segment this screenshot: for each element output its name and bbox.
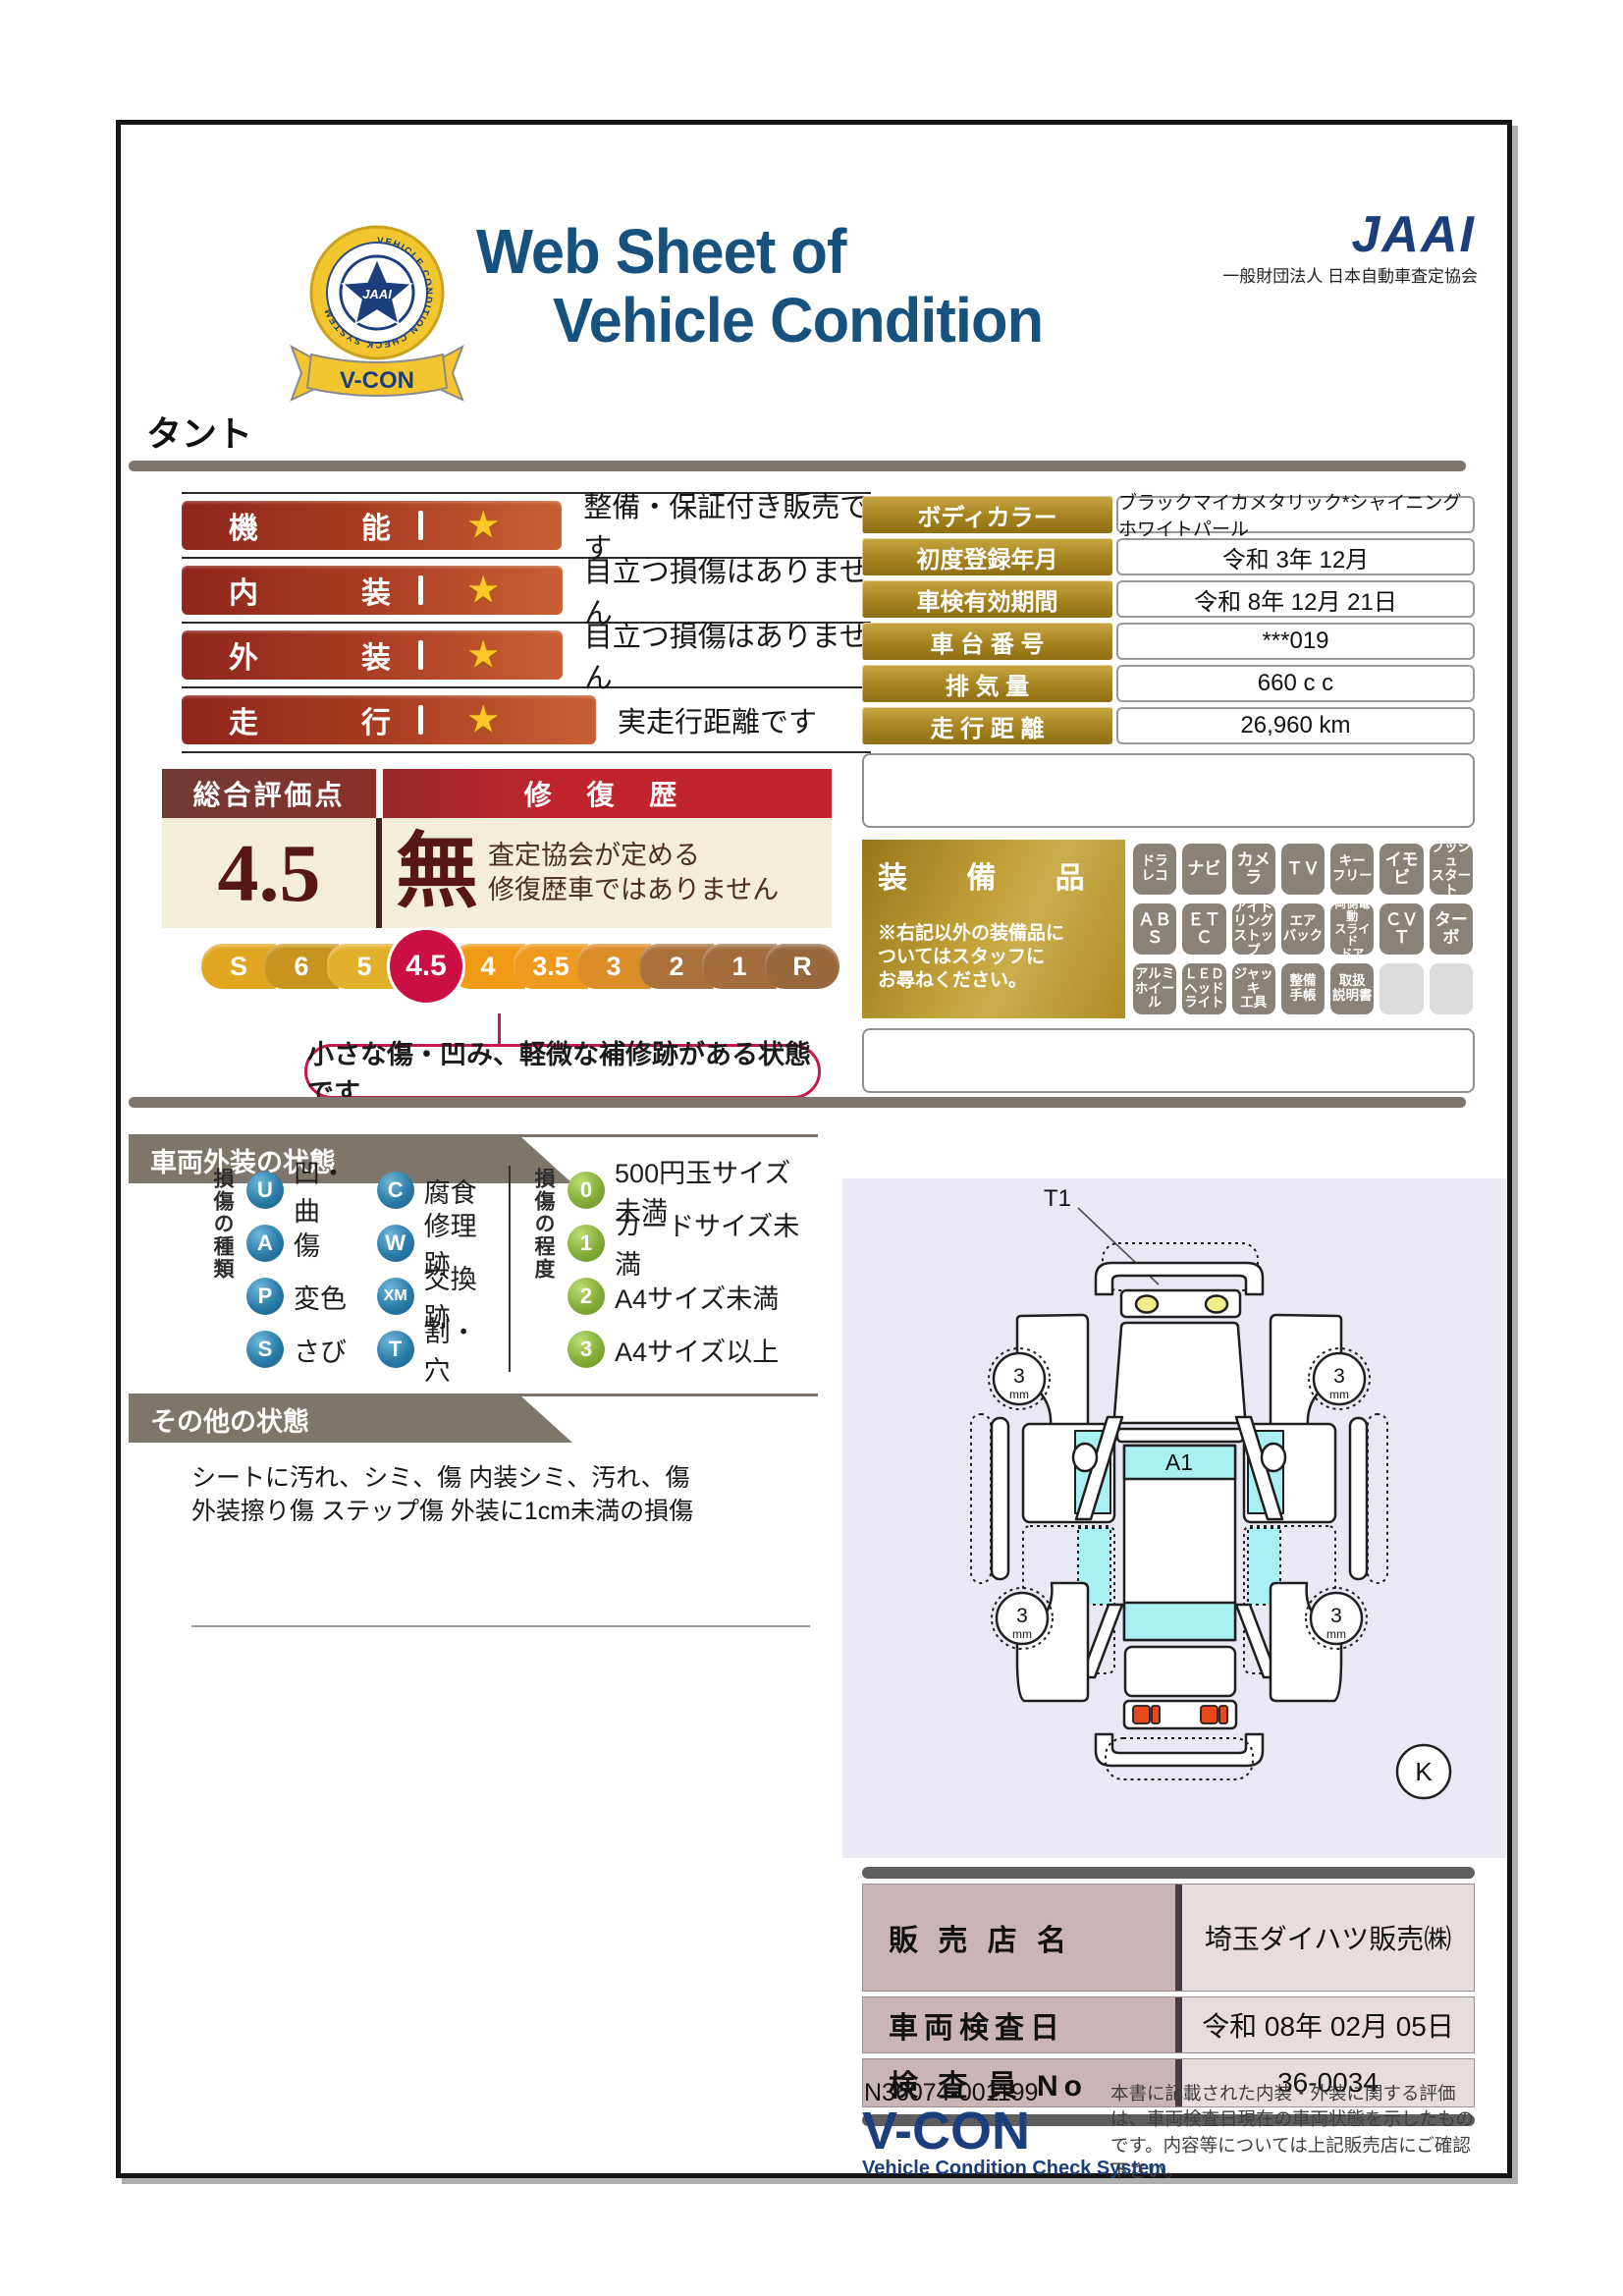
info-label: 車 台 番 号 <box>862 623 1112 660</box>
pill-divider <box>418 640 423 670</box>
score-callout: 小さな傷・凹み、軽微な補修跡がある状態です <box>304 1044 821 1099</box>
equipment-grid: ドラ レコ ナビ カメラ ＴＶ キー フリー イモビ プッシュ スタート ＡＢＳ… <box>1125 840 1475 1018</box>
equipment-badge: キー フリー <box>1330 844 1374 895</box>
rating-row-interior: 内装 ★ 目立つ損傷はありません <box>182 557 871 622</box>
equipment-badge-empty <box>1430 963 1473 1014</box>
rating-label: 外 <box>229 633 258 677</box>
info-empty-box <box>862 753 1475 828</box>
dealer-label: 車両検査日 <box>863 1997 1175 2052</box>
damage-code-U: U <box>246 1172 284 1209</box>
equipment-badge: ＴＶ <box>1281 844 1325 895</box>
damage-code-T: T <box>377 1331 414 1368</box>
equipment-badge: エア バック <box>1281 903 1325 955</box>
sheet-title-line2: Vehicle Condition <box>553 284 1043 356</box>
scale-seg-selected: 4.5 <box>390 930 462 1003</box>
tire-depth-value: 3 <box>1013 1365 1025 1388</box>
rating-row-exterior: 外装 ★ 目立つ損傷はありません <box>182 622 871 686</box>
dealer-divider <box>1175 1997 1182 2052</box>
degree-code-2: 2 <box>568 1278 605 1315</box>
info-value: ブラックマイカメタリック*シャイニングホワイトパール <box>1116 496 1475 533</box>
damage-code-C: C <box>377 1172 414 1209</box>
other-condition-text: シートに汚れ、シミ、傷 内装シミ、汚れ、傷 外装擦り傷 ステップ傷 外装に1cm… <box>191 1462 839 1529</box>
info-label: 車検有効期間 <box>862 580 1112 618</box>
repair-history-value: 無 <box>396 832 478 914</box>
dealer-value: 令和 08年 02月 05日 <box>1182 1997 1474 2052</box>
diagram-label-k: K <box>1415 1757 1433 1786</box>
rating-desc: 実走行距離です <box>618 699 817 740</box>
vehicle-model-name: タント <box>146 406 252 457</box>
rating-pill: 走行 ★ <box>182 695 596 744</box>
rating-label: 機 <box>229 504 258 547</box>
equipment-badge: アイド リング ストップ <box>1232 903 1275 955</box>
vcon-logo: V-CON <box>862 2101 1030 2161</box>
info-label: 初度登録年月 <box>862 538 1112 575</box>
equipment-badge: アルミ ホイール <box>1133 963 1176 1014</box>
info-label: 排 気 量 <box>862 665 1112 702</box>
damage-legend: 損傷の種類 U凹・曲 A傷 P変色 Sさび C腐食 W修理跡 XM交換跡 T割・… <box>207 1164 826 1376</box>
damage-type-text: さび <box>294 1331 347 1369</box>
car-diagram-panel: T1 A1 K 3 mm 3 mm 3 mm 3 mm <box>842 1178 1506 1858</box>
info-row-inspection-valid: 車検有効期間 令和 8年 12月 21日 <box>862 580 1475 618</box>
damage-type-text: 変色 <box>294 1278 347 1316</box>
equipment-badge: 整備 手帳 <box>1281 963 1325 1014</box>
damage-code-A: A <box>246 1225 284 1262</box>
info-value: 令和 8年 12月 21日 <box>1116 580 1475 618</box>
section-title: その他の状態 <box>129 1396 572 1443</box>
tire-depth-unit: mm <box>1009 1388 1029 1401</box>
header-separator <box>376 769 383 818</box>
equipment-badge: ＡＢＳ <box>1133 903 1176 955</box>
vcon-badge-logo: VEHICLE CONDITION CHECK SYSTEM JAAI V-CO… <box>290 211 464 415</box>
evaluation-header-score: 総合評価点 <box>162 769 376 818</box>
scale-seg: R <box>765 944 839 989</box>
rating-label: 走 <box>229 698 258 741</box>
divider-bar <box>129 461 1466 471</box>
equipment-badge-empty <box>1380 963 1423 1014</box>
rating-pill: 内装 ★ <box>182 566 563 615</box>
info-value: 26,960 km <box>1116 707 1475 744</box>
rating-pill: 機能 ★ <box>182 501 562 550</box>
equipment-badge: ターボ <box>1430 903 1473 955</box>
pill-divider <box>418 511 423 540</box>
tire-depth-unit: mm <box>1329 1388 1349 1401</box>
equipment-note: ※右記以外の装備品に ついてはスタッフに お尋ねください。 <box>878 922 1125 992</box>
equipment-badge: イモビ <box>1380 844 1423 895</box>
evaluation-section: 総合評価点 修 復 歴 4.5 無 査定協会が定める 修復歴車ではありません <box>162 769 832 928</box>
damage-type-text: 割・穴 <box>424 1311 482 1388</box>
dealer-divider <box>1175 1885 1182 1991</box>
rating-label: 能 <box>361 504 391 547</box>
degree-code-0: 0 <box>568 1172 605 1209</box>
rating-desc: 目立つ損傷はありません <box>584 614 871 696</box>
rating-label: 行 <box>361 698 391 741</box>
equipment-badge: ナビ <box>1182 844 1225 895</box>
pill-divider <box>418 575 423 605</box>
info-value: 令和 3年 12月 <box>1116 538 1475 575</box>
dealer-table: 販 売 店 名 埼玉ダイハツ販売㈱ 車両検査日 令和 08年 02月 05日 検… <box>862 1884 1475 2107</box>
info-row-chassis-no: 車 台 番 号 ***019 <box>862 623 1475 660</box>
tire-depth-value: 3 <box>1333 1365 1345 1388</box>
rating-label: 装 <box>361 569 391 612</box>
thin-divider <box>191 1625 810 1627</box>
divider-bar <box>129 1097 1466 1108</box>
info-row-displacement: 排 気 量 660 c c <box>862 665 1475 702</box>
evaluation-body: 4.5 無 査定協会が定める 修復歴車ではありません <box>162 818 832 928</box>
pill-divider <box>418 705 423 735</box>
equipment-badge: ジャッキ 工具 <box>1232 963 1275 1014</box>
badge-ribbon-text: V-CON <box>340 367 414 394</box>
degree-text: A4サイズ以上 <box>615 1331 779 1369</box>
tire-depth-value: 3 <box>1016 1605 1028 1627</box>
overall-score: 4.5 <box>162 818 376 928</box>
sheet-frame: VEHICLE CONDITION CHECK SYSTEM JAAI V-CO… <box>116 120 1512 2178</box>
diagram-label-a1: A1 <box>1165 1449 1193 1475</box>
diagram-label-t1: T1 <box>1044 1185 1071 1212</box>
tire-depth-unit: mm <box>1012 1627 1032 1641</box>
equipment-badge: 両側電動 スライド ドア <box>1330 903 1374 955</box>
damage-code-P: P <box>246 1278 284 1315</box>
star-icon: ★ <box>468 506 498 545</box>
dealer-row-inspection-date: 車両検査日 令和 08年 02月 05日 <box>862 1996 1475 2053</box>
equipment-badge: ドラ レコ <box>1133 844 1176 895</box>
info-label: ボディカラー <box>862 496 1112 533</box>
dealer-label: 販 売 店 名 <box>863 1885 1175 1991</box>
jaai-org-name: 一般財団法人 日本自動車査定協会 <box>1193 262 1478 287</box>
star-icon: ★ <box>468 571 498 610</box>
equipment-title: 装 備 品 <box>878 853 1125 897</box>
equipment-empty-box <box>862 1028 1475 1093</box>
rating-list: 機能 ★ 整備・保証付き販売です 内装 ★ 目立つ損傷はありません 外装 ★ 目… <box>182 492 871 753</box>
info-label: 走 行 距 離 <box>862 707 1112 744</box>
repair-history-note: 査定協会が定める 修復歴車ではありません <box>488 839 779 907</box>
damage-type-label: 損傷の種類 <box>207 1168 237 1372</box>
damage-code-W: W <box>377 1225 414 1262</box>
equipment-badge: プッシュ スタート <box>1430 844 1473 895</box>
evaluation-header-repair: 修 復 歴 <box>383 769 832 818</box>
degree-code-1: 1 <box>568 1225 605 1262</box>
equipment-gold-panel: 装 備 品 ※右記以外の装備品に ついてはスタッフに お尋ねください。 <box>862 840 1125 1018</box>
damage-code-XM: XM <box>377 1278 414 1315</box>
damage-degree-label: 損傷の程度 <box>528 1168 558 1372</box>
tire-depth-unit: mm <box>1326 1627 1346 1641</box>
disclaimer-text: 本書に記載された内装・外装に関する評価は、車両検査日現在の車両状態を示したもので… <box>1110 2081 1478 2184</box>
star-icon: ★ <box>468 700 498 739</box>
dealer-value: 埼玉ダイハツ販売㈱ <box>1182 1885 1474 1991</box>
equipment-badge: ＬＥＤ ヘッド ライト <box>1182 963 1225 1014</box>
star-icon: ★ <box>468 635 498 675</box>
dealer-top-bar <box>862 1867 1475 1879</box>
rating-pill: 外装 ★ <box>182 630 563 680</box>
car-exploded-diagram: T1 A1 K 3 mm 3 mm 3 mm 3 mm <box>842 1178 1506 1858</box>
rating-row-mileage: 走行 ★ 実走行距離です <box>182 686 871 753</box>
rating-label: 装 <box>361 633 391 677</box>
dealer-row-shop: 販 売 店 名 埼玉ダイハツ販売㈱ <box>862 1884 1475 1992</box>
equipment-badge: ＥＴＣ <box>1182 903 1225 955</box>
damage-type-text: 傷 <box>294 1225 320 1263</box>
equipment-badge: ＣＶＴ <box>1380 903 1423 955</box>
other-section-header: その他の状態 <box>129 1394 818 1443</box>
damage-type-text: 腐食 <box>424 1172 477 1210</box>
rating-row-function: 機能 ★ 整備・保証付き販売です <box>182 492 871 557</box>
degree-code-3: 3 <box>568 1331 605 1368</box>
badge-center-text: JAAI <box>362 287 392 301</box>
equipment-badge: 取扱 説明書 <box>1330 963 1374 1014</box>
degree-text: A4サイズ未満 <box>615 1278 779 1316</box>
rating-label: 内 <box>229 569 258 612</box>
equipment-section: 装 備 品 ※右記以外の装備品に ついてはスタッフに お尋ねください。 ドラ レ… <box>862 840 1475 1018</box>
info-value: ***019 <box>1116 623 1475 660</box>
evaluation-header: 総合評価点 修 復 歴 <box>162 769 832 818</box>
info-value: 660 c c <box>1116 665 1475 702</box>
info-row-first-registration: 初度登録年月 令和 3年 12月 <box>862 538 1475 575</box>
info-row-mileage: 走 行 距 離 26,960 km <box>862 707 1475 744</box>
jaai-logo: JAAI <box>1279 205 1476 264</box>
score-scale: S 6 5 4.5 4 3.5 3 2 1 R <box>201 944 839 989</box>
tire-depth-value: 3 <box>1330 1605 1342 1627</box>
damage-code-S: S <box>246 1331 284 1368</box>
info-row-bodycolor: ボディカラー ブラックマイカメタリック*シャイニングホワイトパール <box>862 496 1475 533</box>
sheet-title-line1: Web Sheet of <box>476 215 846 288</box>
legend-divider <box>509 1166 511 1372</box>
equipment-badge: カメラ <box>1232 844 1275 895</box>
